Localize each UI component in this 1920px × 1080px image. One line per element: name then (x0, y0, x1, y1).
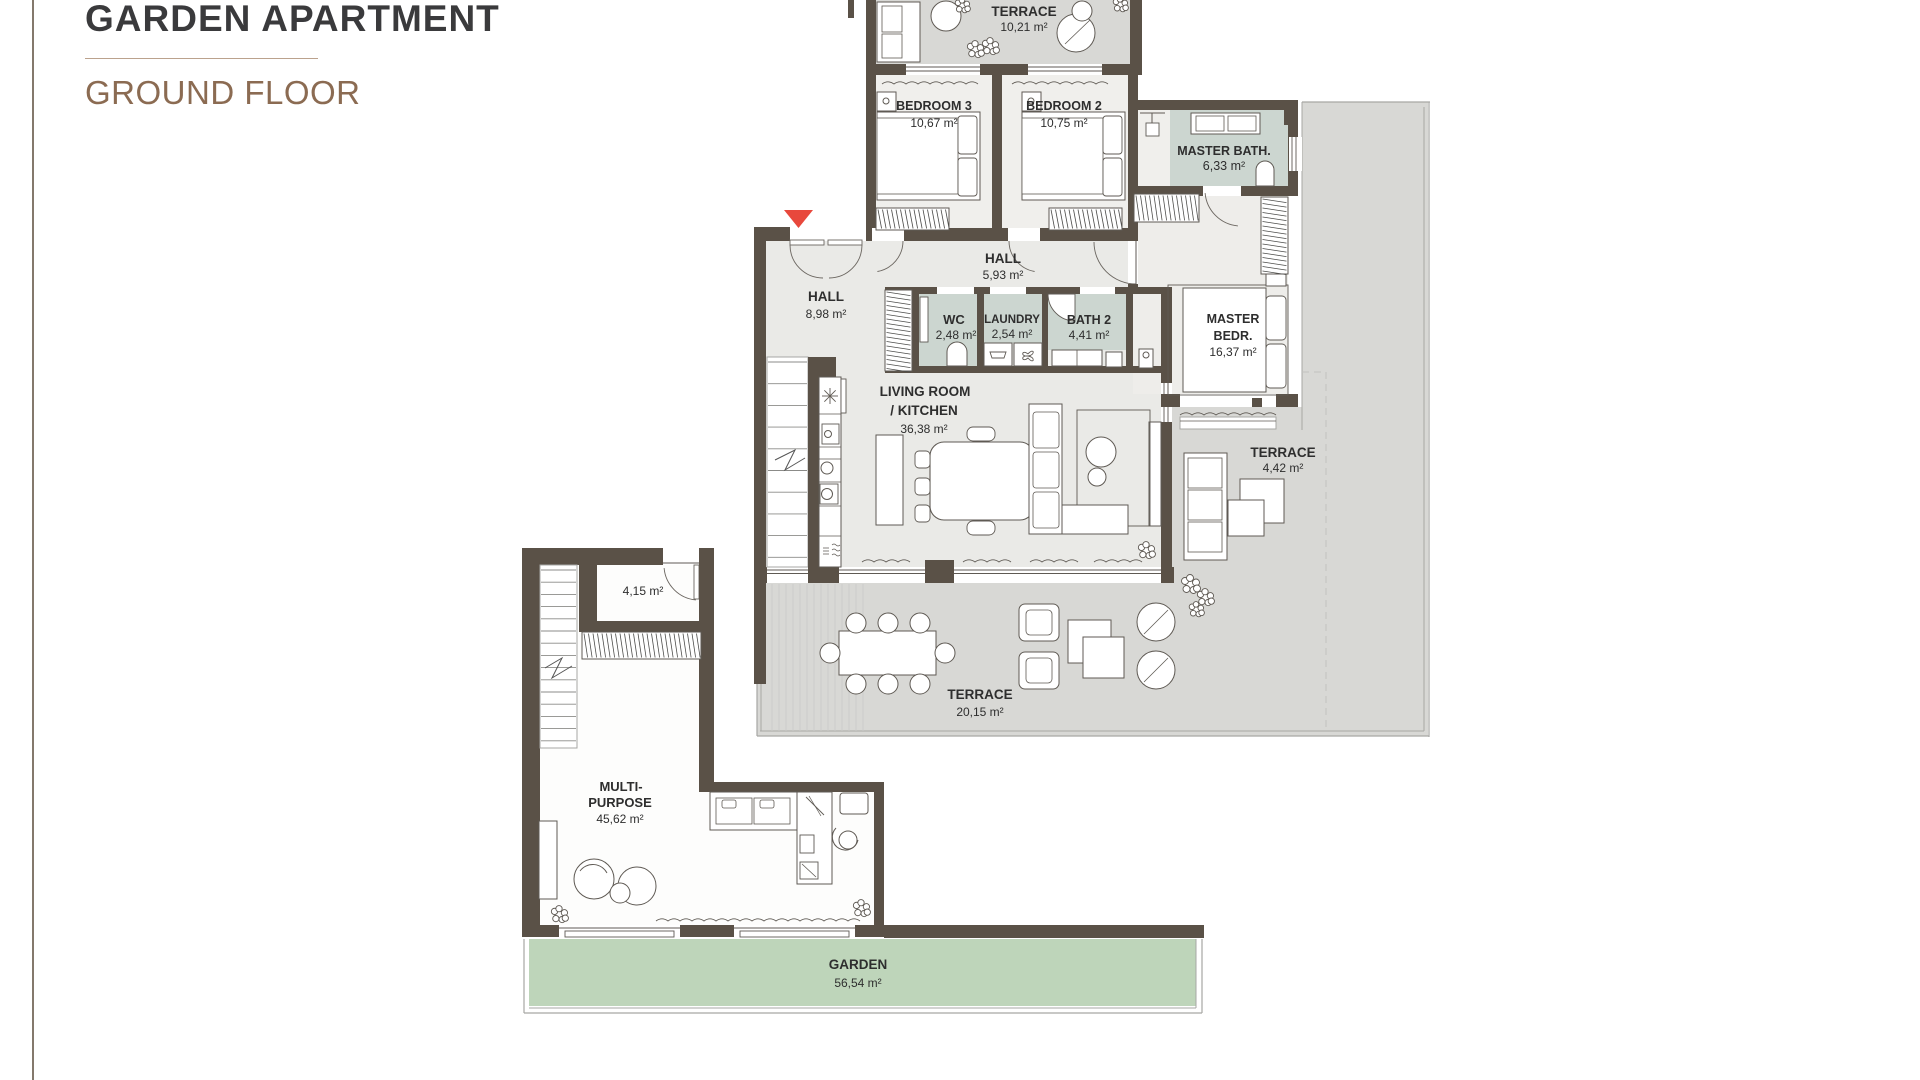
svg-text:4,15 m²: 4,15 m² (623, 584, 664, 598)
svg-text:10,67 m²: 10,67 m² (910, 116, 957, 130)
svg-text:4,41 m²: 4,41 m² (1069, 328, 1110, 342)
svg-text:MULTI-: MULTI- (599, 779, 642, 794)
svg-text:LIVING ROOM: LIVING ROOM (880, 384, 971, 399)
svg-text:GARDEN: GARDEN (829, 957, 888, 972)
svg-text:HALL: HALL (985, 251, 1021, 266)
svg-text:HALL: HALL (808, 289, 844, 304)
svg-text:BATH 2: BATH 2 (1067, 313, 1111, 327)
svg-text:6,33 m²: 6,33 m² (1203, 159, 1245, 173)
svg-text:5,93 m²: 5,93 m² (983, 268, 1024, 282)
svg-text:TERRACE: TERRACE (991, 4, 1056, 19)
svg-text:MASTER BATH.: MASTER BATH. (1177, 144, 1271, 158)
svg-text:45,62 m²: 45,62 m² (596, 812, 643, 826)
svg-text:2,48 m²: 2,48 m² (936, 328, 977, 342)
svg-text:BEDROOM 3: BEDROOM 3 (896, 99, 972, 113)
svg-text:56,54 m²: 56,54 m² (834, 976, 881, 990)
svg-text:20,15 m²: 20,15 m² (956, 705, 1003, 719)
svg-text:/ KITCHEN: / KITCHEN (890, 403, 958, 418)
svg-text:36,38 m²: 36,38 m² (900, 422, 947, 436)
svg-text:10,21 m²: 10,21 m² (1000, 20, 1047, 34)
svg-text:8,98 m²: 8,98 m² (806, 307, 847, 321)
svg-text:16,37 m²: 16,37 m² (1209, 345, 1256, 359)
svg-text:2,54 m²: 2,54 m² (992, 327, 1033, 341)
svg-text:TERRACE: TERRACE (947, 687, 1012, 702)
svg-text:MASTER: MASTER (1207, 312, 1260, 326)
svg-text:BEDR.: BEDR. (1214, 329, 1253, 343)
svg-text:10,75 m²: 10,75 m² (1040, 116, 1087, 130)
svg-text:PURPOSE: PURPOSE (588, 795, 652, 810)
svg-text:BEDROOM 2: BEDROOM 2 (1026, 99, 1102, 113)
svg-text:4,42 m²: 4,42 m² (1263, 461, 1304, 475)
svg-text:WC: WC (943, 312, 965, 327)
svg-text:TERRACE: TERRACE (1250, 445, 1315, 460)
svg-text:LAUNDRY: LAUNDRY (984, 314, 1040, 326)
